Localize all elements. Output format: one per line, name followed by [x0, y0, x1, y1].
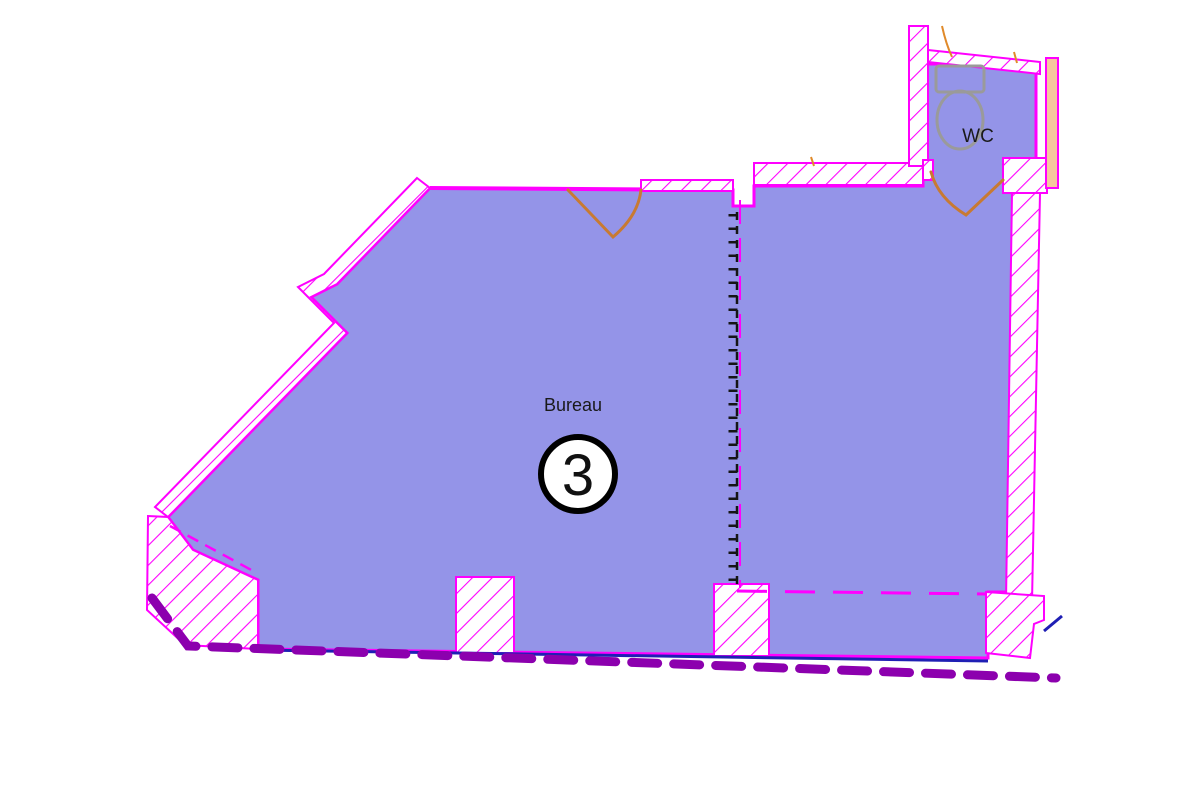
floor-plan-page: Bureau 3 WC	[0, 0, 1200, 800]
room-number-badge: 3	[541, 437, 615, 511]
room-number-text: 3	[562, 443, 594, 508]
adjacent-tan-strip	[1046, 58, 1058, 188]
floor-plan-canvas: Bureau 3 WC	[0, 0, 1200, 800]
wall-bottom-pier-1	[456, 577, 514, 653]
wall-wc-left	[909, 26, 928, 166]
wall-top-tick-band	[641, 180, 733, 191]
room-label-bureau: Bureau	[544, 395, 602, 415]
wall-bottom-pier-2	[714, 584, 769, 656]
wall-top-right-band	[754, 163, 923, 185]
wall-topright-pier	[1003, 158, 1047, 193]
room-label-wc: WC	[962, 126, 994, 147]
